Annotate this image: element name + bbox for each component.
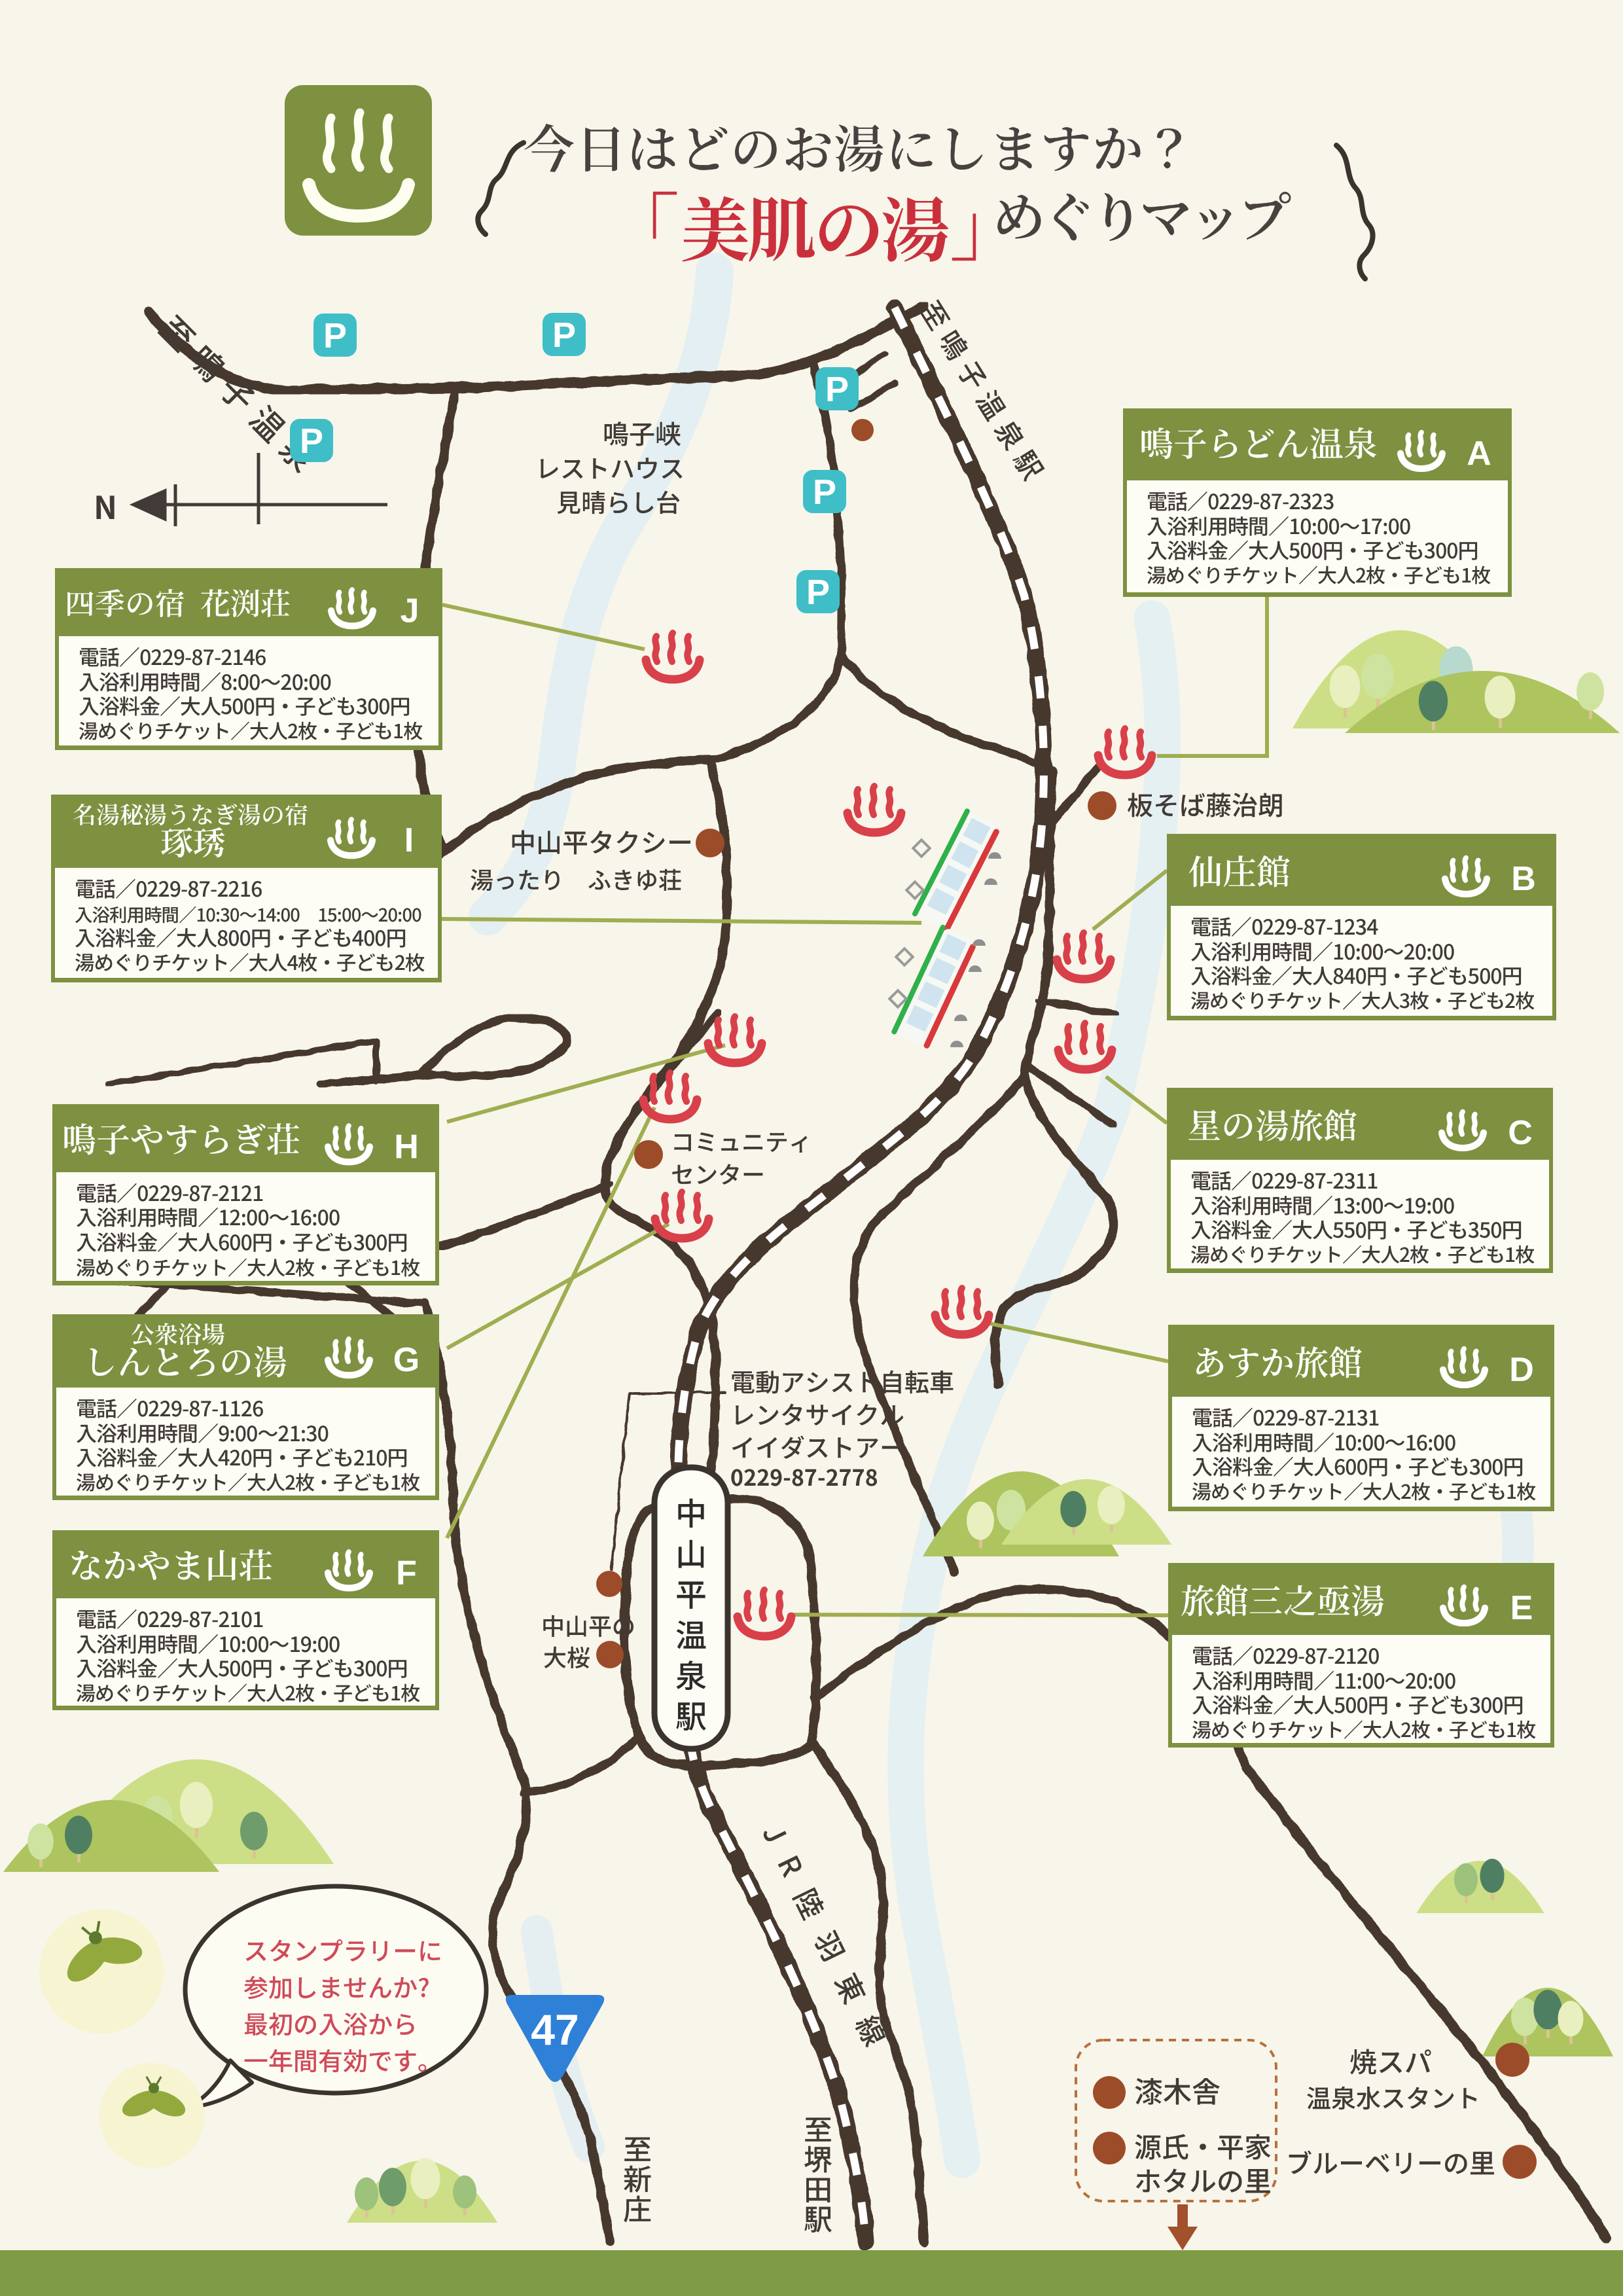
svg-text:C: C — [1508, 1114, 1533, 1152]
svg-text:A: A — [1467, 435, 1491, 473]
svg-text:I: I — [404, 821, 414, 859]
svg-text:G: G — [393, 1341, 419, 1379]
svg-text:P: P — [825, 370, 849, 409]
svg-text:H: H — [394, 1128, 419, 1166]
svg-text:P: P — [806, 573, 830, 612]
svg-text:D: D — [1509, 1351, 1534, 1389]
svg-text:47: 47 — [531, 2005, 579, 2054]
svg-text:B: B — [1511, 860, 1536, 898]
svg-text:P: P — [813, 473, 836, 512]
svg-text:J: J — [401, 592, 419, 630]
svg-text:P: P — [323, 316, 347, 355]
svg-text:E: E — [1510, 1589, 1533, 1627]
svg-text:P: P — [552, 315, 576, 355]
svg-text:P: P — [300, 422, 323, 461]
svg-text:F: F — [396, 1554, 417, 1592]
